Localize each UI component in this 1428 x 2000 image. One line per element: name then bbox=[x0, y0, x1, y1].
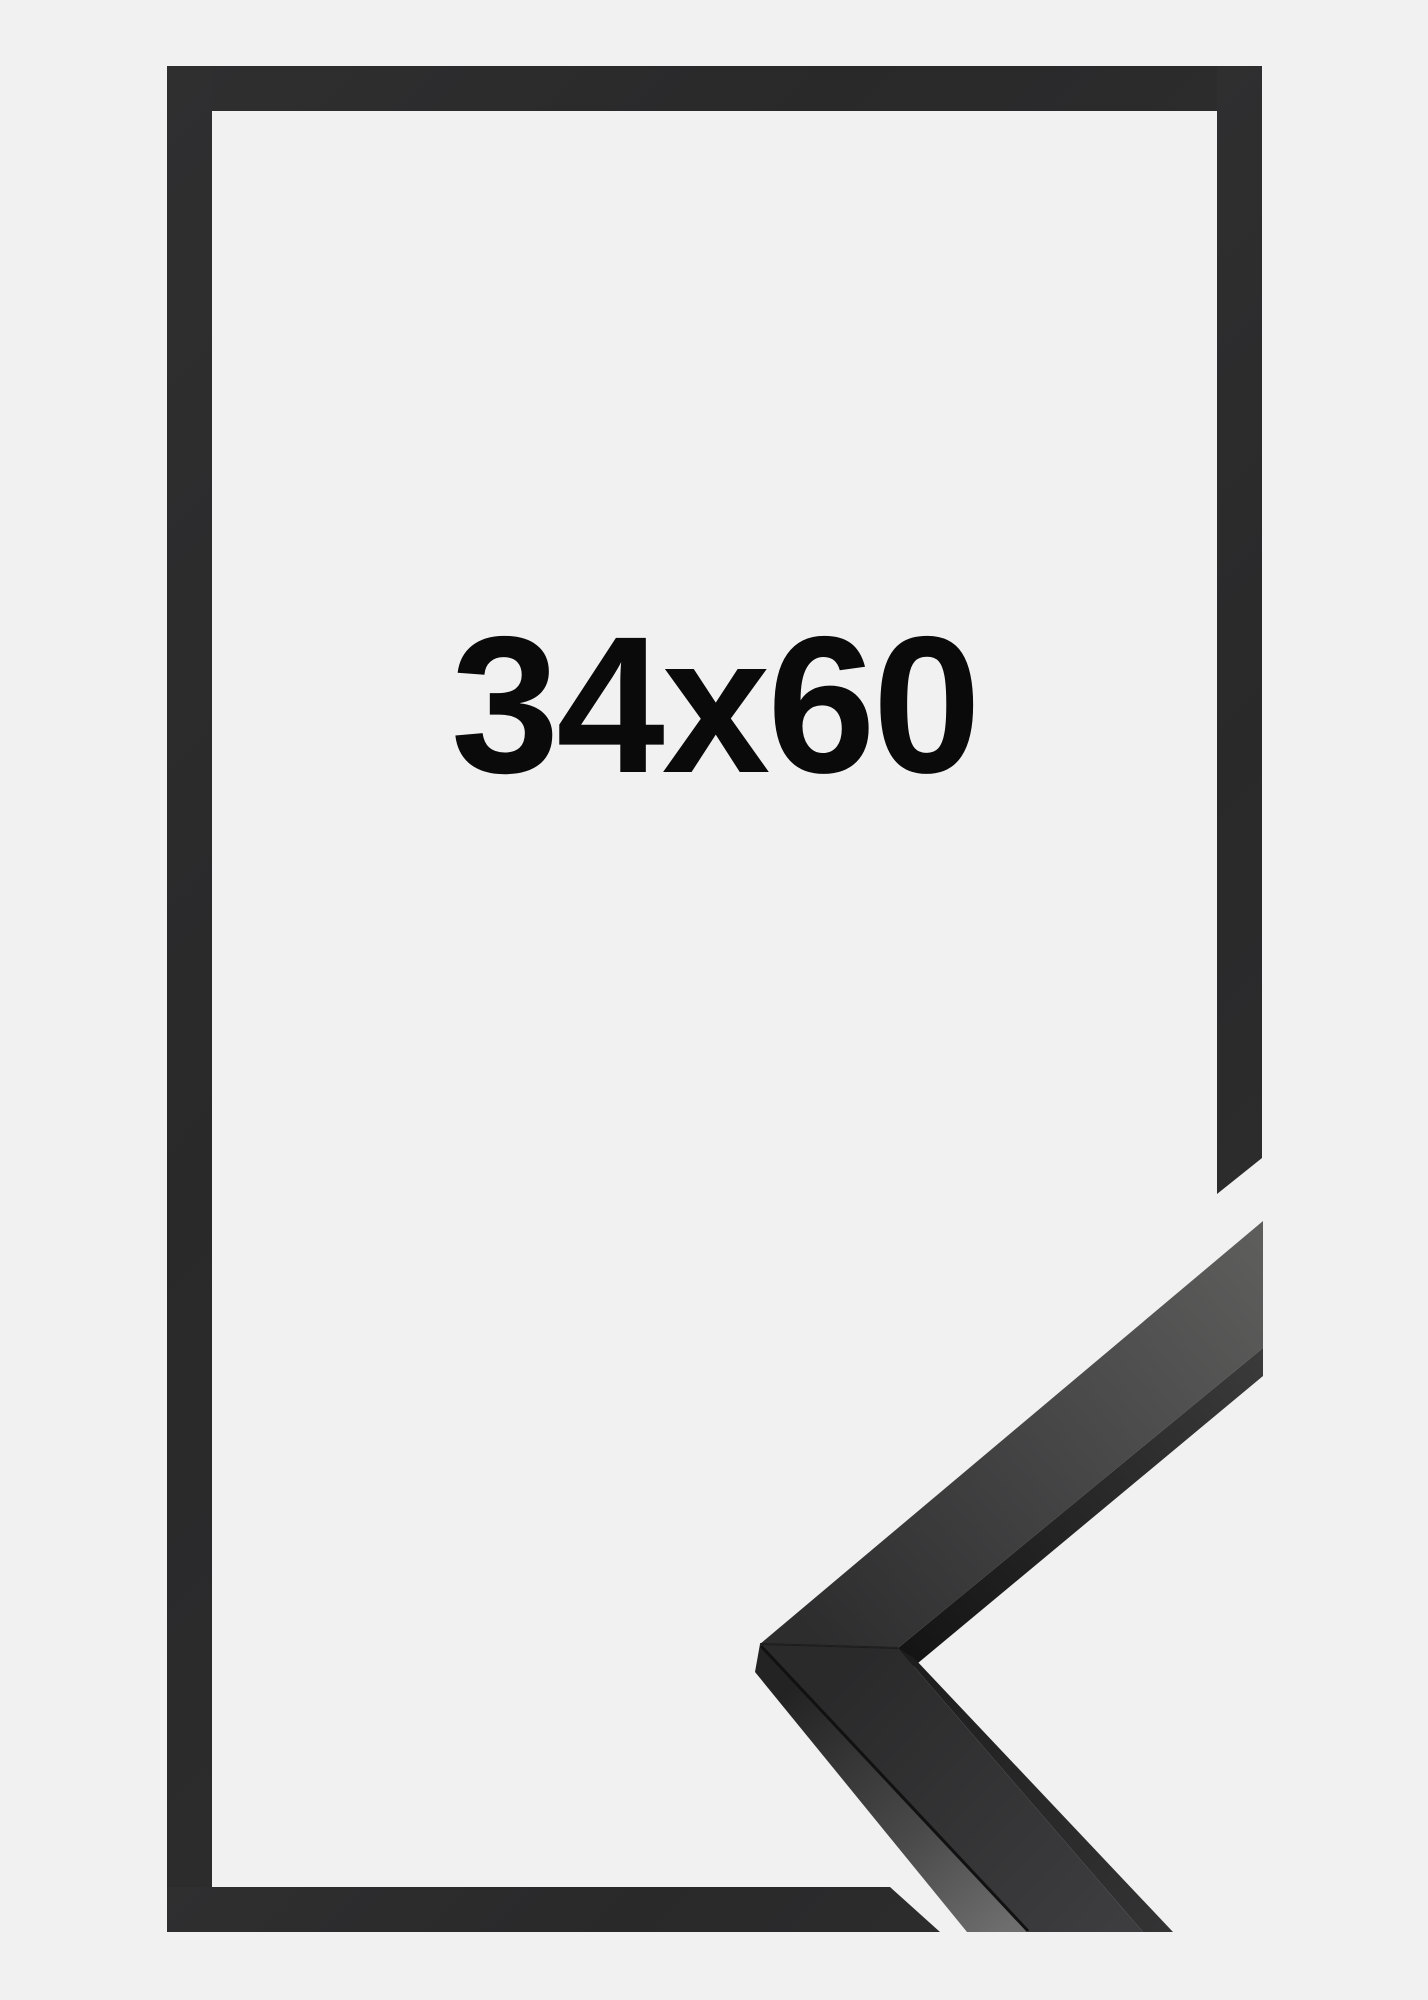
frame-outline-bottom-bar bbox=[167, 1887, 940, 1932]
frame-outline-left-bar bbox=[167, 66, 212, 1932]
product-image-canvas: 34x60 bbox=[0, 0, 1428, 2000]
corner-sample-lower-arm-inner-edge bbox=[898, 1648, 1173, 1932]
corner-sample-upper-arm-inner-edge bbox=[898, 1348, 1263, 1668]
frame-corner-sample-photo bbox=[0, 0, 1428, 2000]
frame-size-label: 34x60 bbox=[167, 608, 1262, 803]
corner-sample-upper-arm-top-face bbox=[760, 1221, 1263, 1648]
frame-outline-top-bar bbox=[167, 66, 1262, 111]
corner-sample-miter-seam bbox=[760, 1644, 898, 1648]
